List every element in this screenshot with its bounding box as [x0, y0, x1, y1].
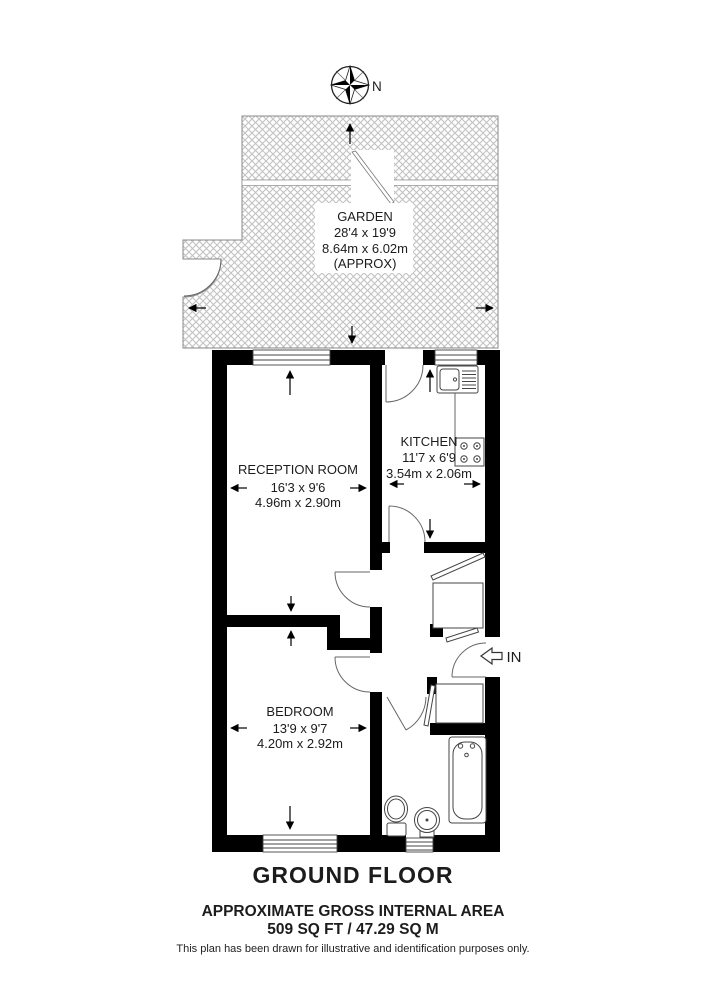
floor-plan-drawing: N GARDEN 28'4 x 19'9 8.64m x 6.02m (APPR…: [0, 0, 707, 1000]
bath-tub-icon: [449, 737, 486, 823]
reception-dims-metric: 4.96m x 2.90m: [255, 495, 341, 510]
reception-dims-imperial: 16'3 x 9'6: [271, 480, 326, 495]
kitchen-dims-imperial: 11'7 x 6'9: [402, 450, 456, 465]
reception-window: [253, 350, 330, 365]
kitchen-window: [435, 350, 477, 365]
compass-rose-icon: N: [331, 66, 382, 104]
footer: GROUND FLOOR APPROXIMATE GROSS INTERNAL …: [176, 862, 529, 955]
bedroom-label: BEDROOM: [266, 704, 333, 719]
bedroom-dims-metric: 4.20m x 2.92m: [257, 736, 343, 751]
floor-title: GROUND FLOOR: [252, 862, 453, 888]
kitchen-dims-metric: 3.54m x 2.06m: [386, 466, 472, 481]
cupboard-box: [433, 583, 483, 628]
kitchen-label: KITCHEN: [400, 434, 457, 449]
garden-approx-note: (APPROX): [334, 256, 397, 271]
area-value: 509 SQ FT / 47.29 SQ M: [267, 921, 438, 938]
toilet-icon: [385, 796, 408, 836]
kitchen-sink-icon: [437, 366, 478, 393]
bathroom-window: [406, 838, 433, 852]
garden-area: GARDEN 28'4 x 19'9 8.64m x 6.02m (APPROX…: [183, 116, 498, 348]
reception-label: RECEPTION ROOM: [238, 462, 358, 477]
hob-icon: [455, 438, 484, 466]
building: RECEPTION ROOM 16'3 x 9'6 4.96m x 2.90m …: [212, 350, 522, 852]
entrance-label: IN: [507, 649, 522, 666]
garden-dims-metric: 8.64m x 6.02m: [322, 241, 408, 256]
floor-plan-page: N GARDEN 28'4 x 19'9 8.64m x 6.02m (APPR…: [0, 0, 707, 1000]
disclaimer-text: This plan has been drawn for illustrativ…: [176, 943, 529, 955]
garden-label: GARDEN: [337, 209, 393, 224]
bedroom-dims-imperial: 13'9 x 9'7: [273, 721, 328, 736]
cupboard-box-lower: [436, 684, 483, 723]
garden-dims-imperial: 28'4 x 19'9: [334, 225, 396, 240]
compass-north-label: N: [372, 79, 382, 94]
area-heading: APPROXIMATE GROSS INTERNAL AREA: [202, 903, 505, 920]
bedroom-window: [263, 835, 337, 852]
